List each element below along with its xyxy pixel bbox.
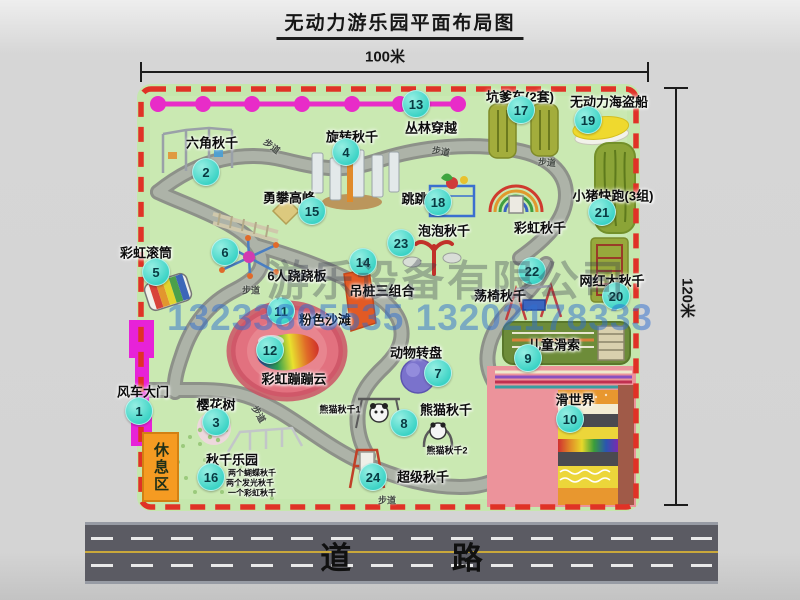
height-dimension-label: 120米: [678, 278, 699, 318]
screenshot-root: 无动力游乐园平面布局图 100米 120米: [0, 0, 800, 600]
road: 道 路: [85, 522, 718, 584]
rest-area-label: 休息区: [150, 442, 171, 493]
kids-zipline-icon: [503, 322, 630, 364]
piggy-run-icon: [595, 143, 635, 233]
slide-world-icon: [487, 366, 636, 507]
animal-carousel-icon: [401, 359, 435, 393]
road-label: 道 路: [85, 533, 718, 578]
rest-area: 休息区: [142, 432, 179, 502]
cherry-tree-icon: [197, 411, 231, 445]
page-title: 无动力游乐园平面布局图: [276, 8, 523, 40]
width-dimension-label: 100米: [365, 46, 405, 67]
big-swing-icon: [591, 238, 628, 302]
